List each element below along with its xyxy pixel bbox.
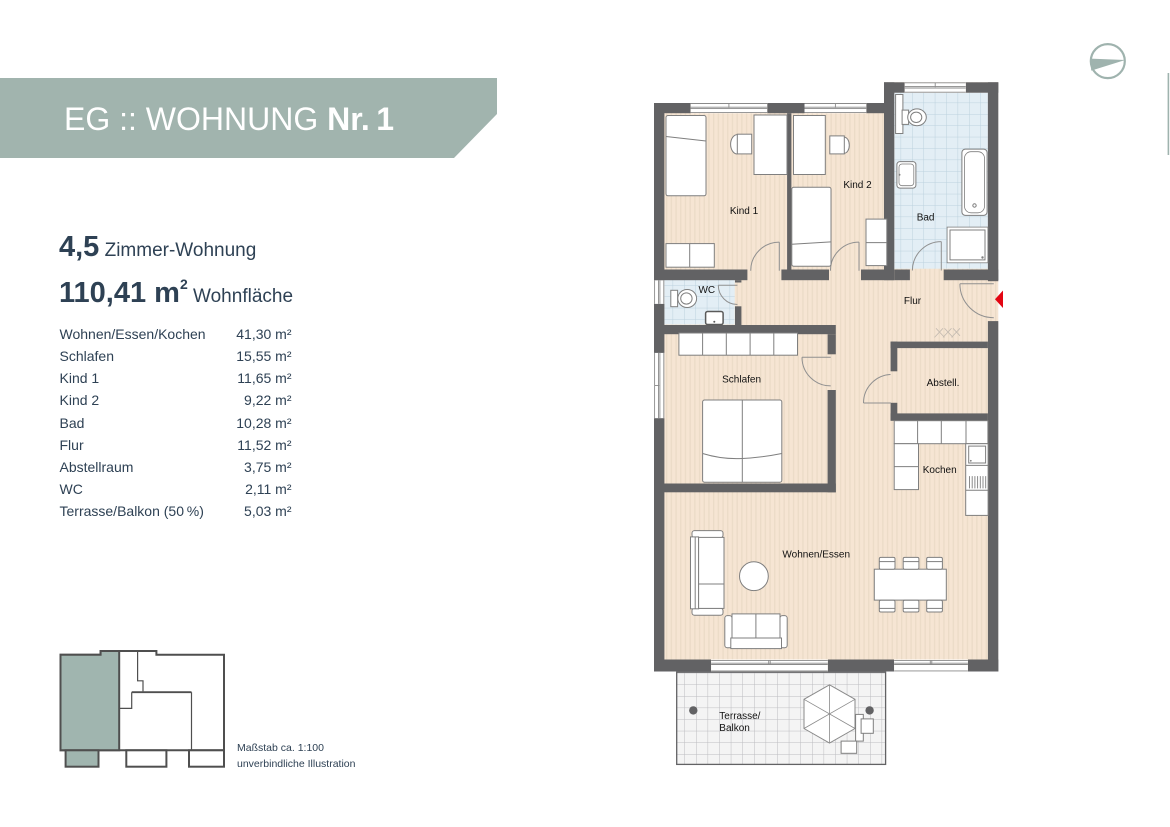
svg-text:WC: WC bbox=[698, 285, 715, 296]
svg-text:Schlafen: Schlafen bbox=[722, 375, 761, 386]
svg-text:Abstell.: Abstell. bbox=[927, 378, 960, 389]
svg-text:Balkon: Balkon bbox=[719, 723, 750, 734]
svg-text:Terrasse/: Terrasse/ bbox=[719, 711, 760, 722]
svg-text:Flur: Flur bbox=[904, 296, 922, 307]
svg-text:Kochen: Kochen bbox=[923, 465, 957, 476]
svg-text:Kind 1: Kind 1 bbox=[730, 206, 759, 217]
svg-text:Kind 2: Kind 2 bbox=[843, 180, 872, 191]
svg-text:Wohnen/Essen: Wohnen/Essen bbox=[782, 550, 850, 561]
svg-text:Bad: Bad bbox=[917, 213, 935, 224]
